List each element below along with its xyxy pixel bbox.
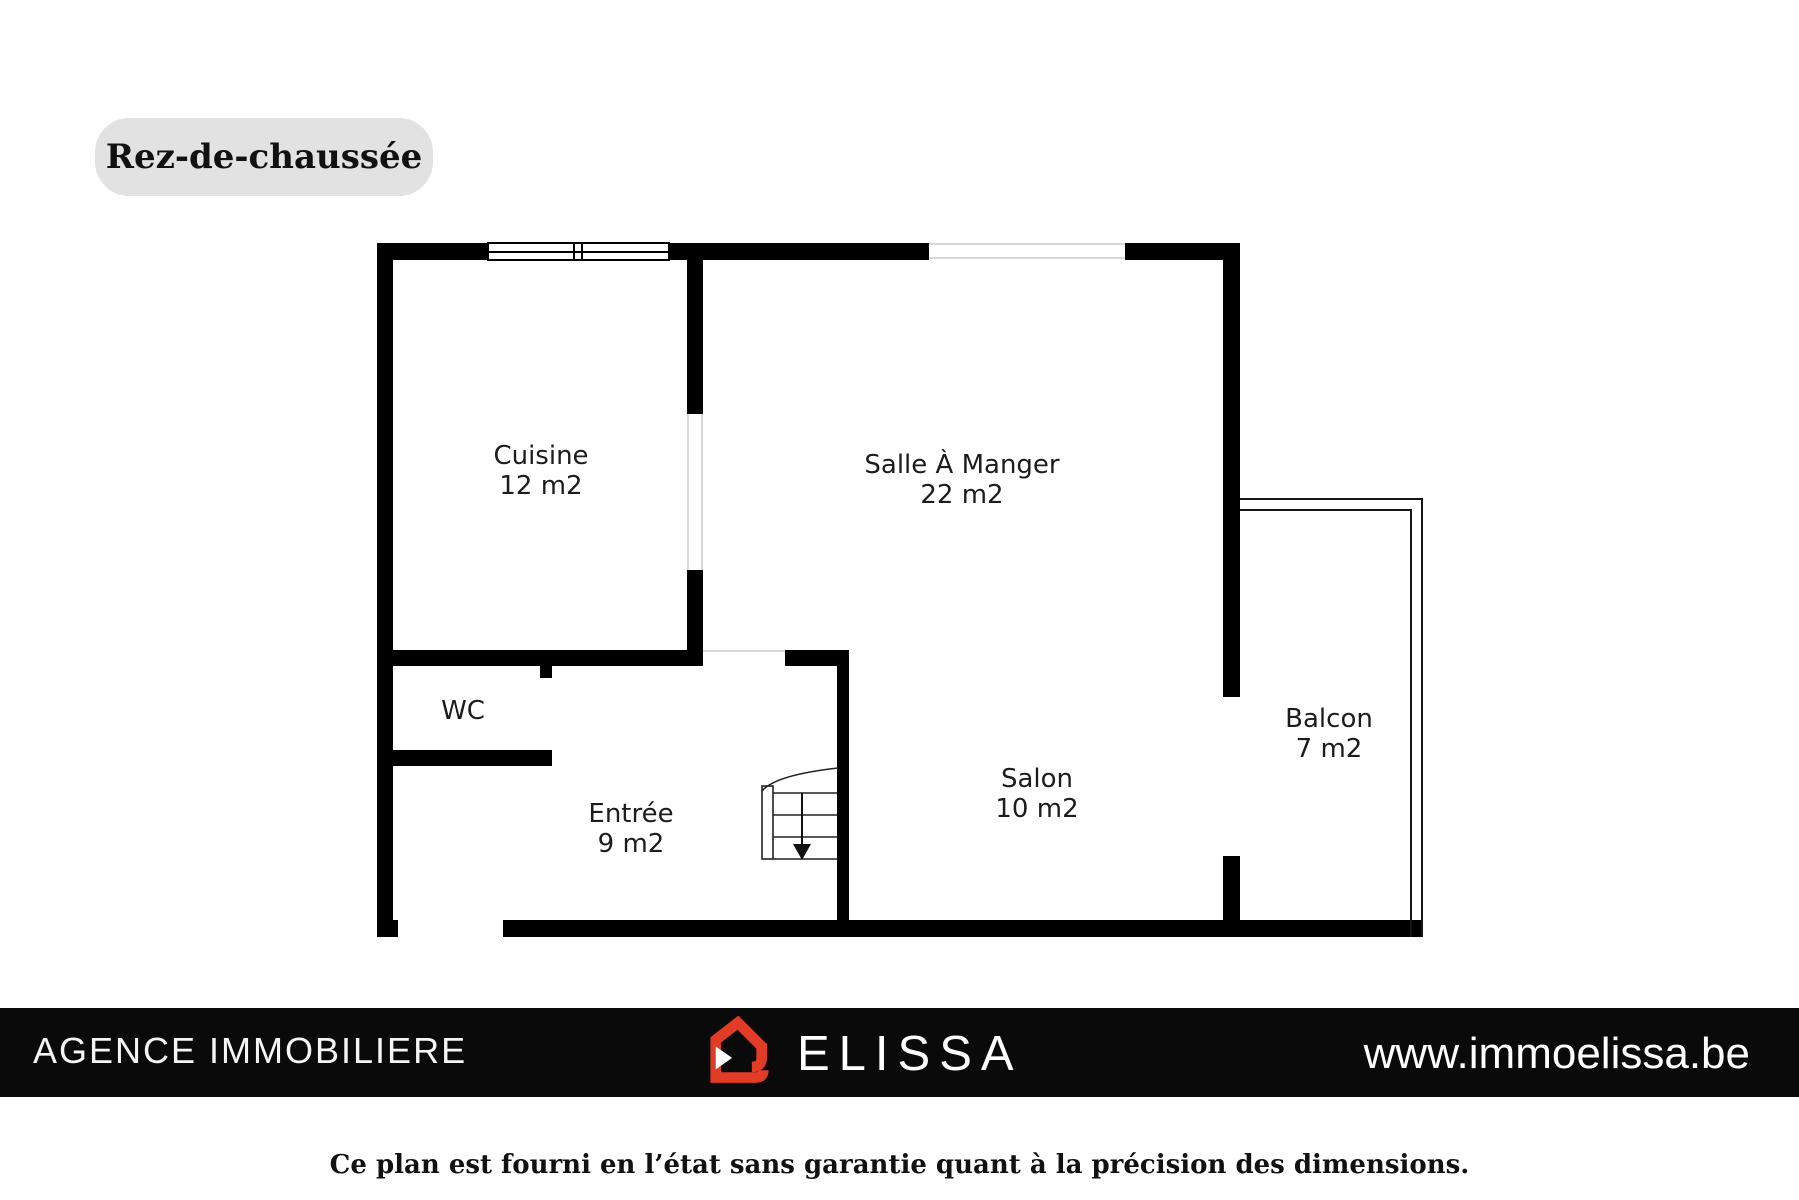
room-area: 10 m2 bbox=[995, 794, 1078, 824]
arrow-down-icon bbox=[793, 844, 811, 860]
website-url: www.immoelissa.be bbox=[1364, 1029, 1750, 1079]
room-name: Cuisine bbox=[493, 441, 588, 471]
floorplan-page: Rez-de-chaussée Cuisine bbox=[0, 0, 1799, 1200]
window-mullion bbox=[573, 244, 575, 259]
brand-name: ELISSA bbox=[797, 1026, 1023, 1082]
house-icon bbox=[701, 1012, 783, 1094]
room-area: 9 m2 bbox=[588, 829, 673, 859]
wall-mid-horizontal-left bbox=[393, 650, 703, 666]
disclaimer-text: Ce plan est fourni en l’état sans garant… bbox=[0, 1150, 1799, 1180]
wall-left bbox=[377, 243, 393, 937]
window-icon bbox=[487, 242, 670, 261]
agency-name: AGENCE IMMOBILIERE bbox=[33, 1030, 467, 1072]
window-midline bbox=[489, 251, 668, 253]
room-area: 22 m2 bbox=[864, 480, 1059, 510]
floor-title-badge: Rez-de-chaussée bbox=[95, 118, 433, 196]
opening-divider-line bbox=[701, 414, 703, 570]
room-label-entree: Entrée 9 m2 bbox=[588, 799, 673, 859]
room-name: Salon bbox=[995, 764, 1078, 794]
opening-top-line bbox=[929, 257, 1125, 259]
window-mullion bbox=[581, 244, 583, 259]
wall-divider-upper bbox=[687, 260, 703, 414]
room-area: 12 m2 bbox=[493, 471, 588, 501]
room-area: 7 m2 bbox=[1285, 734, 1373, 764]
opening-divider-line bbox=[687, 414, 689, 570]
room-name: Salle À Manger bbox=[864, 450, 1059, 480]
room-name: Balcon bbox=[1285, 704, 1373, 734]
wall-top-middle bbox=[670, 243, 929, 260]
opening-entree-line bbox=[703, 650, 785, 652]
wall-wc-right-stub bbox=[540, 666, 552, 678]
room-label-wc: WC bbox=[441, 696, 485, 726]
room-label-balcon: Balcon 7 m2 bbox=[1285, 704, 1373, 764]
opening-top-line bbox=[929, 243, 1125, 245]
stairs-icon bbox=[750, 755, 850, 870]
wall-top-left bbox=[377, 243, 487, 260]
room-name: WC bbox=[441, 696, 485, 726]
room-name: Entrée bbox=[588, 799, 673, 829]
room-label-salle-a-manger: Salle À Manger 22 m2 bbox=[864, 450, 1059, 510]
wall-bottom-left-stub bbox=[377, 920, 398, 937]
wall-right-upper bbox=[1223, 243, 1240, 697]
wall-wc-bottom bbox=[393, 750, 552, 766]
room-label-cuisine: Cuisine 12 m2 bbox=[493, 441, 588, 501]
room-label-salon: Salon 10 m2 bbox=[995, 764, 1078, 824]
